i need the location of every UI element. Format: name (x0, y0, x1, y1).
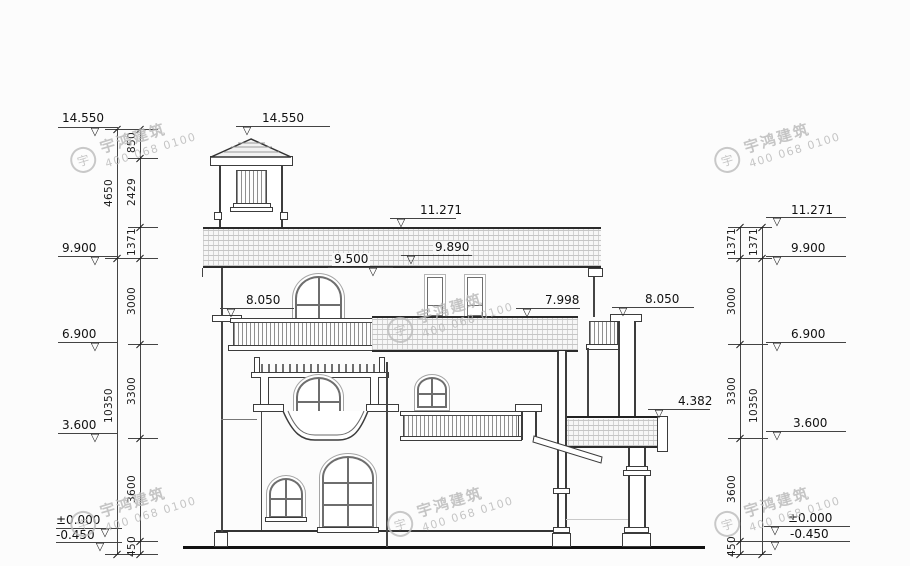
elevation-label: 14.550 (262, 112, 304, 125)
sloped-elements (0, 0, 910, 566)
elevation-triangle-icon: ▽ (240, 126, 254, 136)
elevation-triangle-icon: ▽ (520, 308, 534, 318)
elevation-triangle-icon: ▽ (394, 218, 408, 228)
elevation-label: 9.890 (433, 241, 471, 254)
elevation-label: 7.998 (545, 294, 579, 307)
elevation-label: 8.050 (246, 294, 280, 307)
elevation-marker-line (328, 267, 393, 268)
elevation-triangle-icon: ▽ (366, 267, 380, 277)
elevation-label: 4.382 (678, 395, 712, 408)
elevation-triangle-icon: ▽ (616, 307, 630, 317)
elevation-label: 8.050 (645, 293, 679, 306)
elevation-label: 9.500 (332, 253, 370, 266)
tower-roof (211, 139, 291, 157)
elevation-triangle-icon: ▽ (224, 308, 238, 318)
elevation-drawing: 850 2429 1371 3000 3300 3600 450 4650 10… (0, 0, 910, 566)
elevation-triangle-icon: ▽ (652, 409, 666, 419)
elevation-label: 11.271 (420, 204, 462, 217)
stair-stringer (533, 436, 602, 463)
elevation-triangle-icon: ▽ (404, 255, 418, 265)
